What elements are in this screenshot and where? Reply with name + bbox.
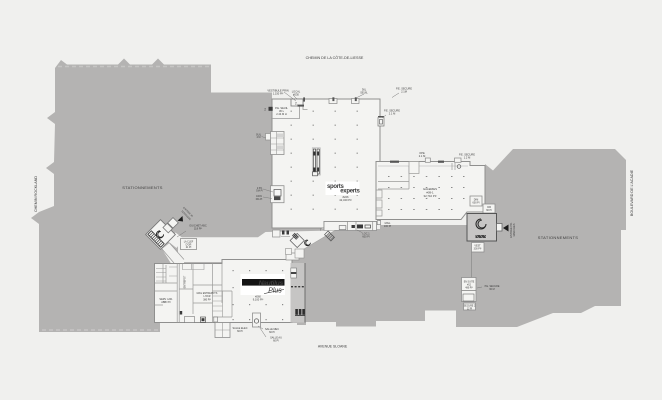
svg-text:60 PI: 60 PI — [269, 331, 275, 334]
svg-text:1,150 PI²: 1,150 PI² — [273, 92, 284, 96]
svg-text:BOULEVARD DE L'ACADIE: BOULEVARD DE L'ACADIE — [630, 169, 634, 216]
svg-text:2.1 M: 2.1 M — [389, 112, 396, 116]
svg-text:DIA PI: DIA PI — [256, 198, 263, 201]
svg-text:9,100 PI²: 9,100 PI² — [253, 298, 264, 302]
svg-text:2.1M: 2.1M — [401, 90, 407, 94]
svg-text:CHEMIN DE LA CÔTE-DE-LIESSE: CHEMIN DE LA CÔTE-DE-LIESSE — [306, 55, 364, 60]
svg-text:2.1 M: 2.1 M — [419, 154, 426, 158]
svg-text:2: 2 — [264, 108, 266, 112]
svg-text:STATIONNEMENTS: STATIONNEMENTS — [122, 185, 163, 190]
svg-text:21 PI: 21 PI — [186, 246, 192, 249]
svg-text:118 PI²: 118 PI² — [194, 227, 202, 231]
svg-text:1.2 M: 1.2 M — [464, 156, 471, 160]
svg-text:600 PI: 600 PI — [473, 202, 480, 205]
svg-text:STATIONNEMENTS: STATIONNEMENTS — [538, 235, 579, 240]
svg-text:Nautilus: Nautilus — [259, 280, 284, 287]
svg-text:300 PI²: 300 PI² — [474, 248, 482, 251]
svg-text:SECURE 2: SECURE 2 — [464, 306, 476, 308]
svg-text:12 PI: 12 PI — [467, 308, 473, 310]
svg-text:2.44 M H: 2.44 M H — [276, 112, 287, 116]
svg-text:42,340 PI²: 42,340 PI² — [339, 198, 352, 202]
svg-text:MARCHES: MARCHES — [512, 223, 516, 236]
svg-text:60 M: 60 M — [489, 288, 494, 291]
svg-text:60 PI: 60 PI — [237, 330, 243, 333]
svg-text:EN SUITE: EN SUITE — [464, 282, 475, 284]
svg-text:2.: 2. — [295, 102, 298, 106]
svg-text:CHEMIN ROCKLAND: CHEMIN ROCKLAND — [34, 176, 38, 212]
svg-text:32,710 PI²: 32,710 PI² — [424, 194, 437, 198]
svg-text:experts: experts — [340, 188, 360, 194]
svg-text:2 M: 2 M — [257, 137, 261, 139]
svg-text:60 PI: 60 PI — [486, 209, 492, 212]
svg-text:600 PI: 600 PI — [362, 236, 370, 239]
svg-text:DIA PI: DIA PI — [256, 189, 263, 192]
svg-text:480 PI²: 480 PI² — [465, 287, 473, 290]
svg-text:SEUIL: SEUIL — [360, 91, 368, 95]
svg-text:100 PI: 100 PI — [384, 225, 392, 228]
svg-text:AVENUE SLOANE: AVENUE SLOANE — [318, 345, 348, 349]
svg-text:#230: #230 — [293, 93, 299, 97]
svg-text:60 PI: 60 PI — [273, 340, 279, 343]
svg-text:ENTREPOT: ENTREPOT — [185, 275, 187, 288]
svg-text:380 PI²: 380 PI² — [203, 298, 211, 301]
svg-text:ABBI PI²: ABBI PI² — [161, 301, 171, 304]
